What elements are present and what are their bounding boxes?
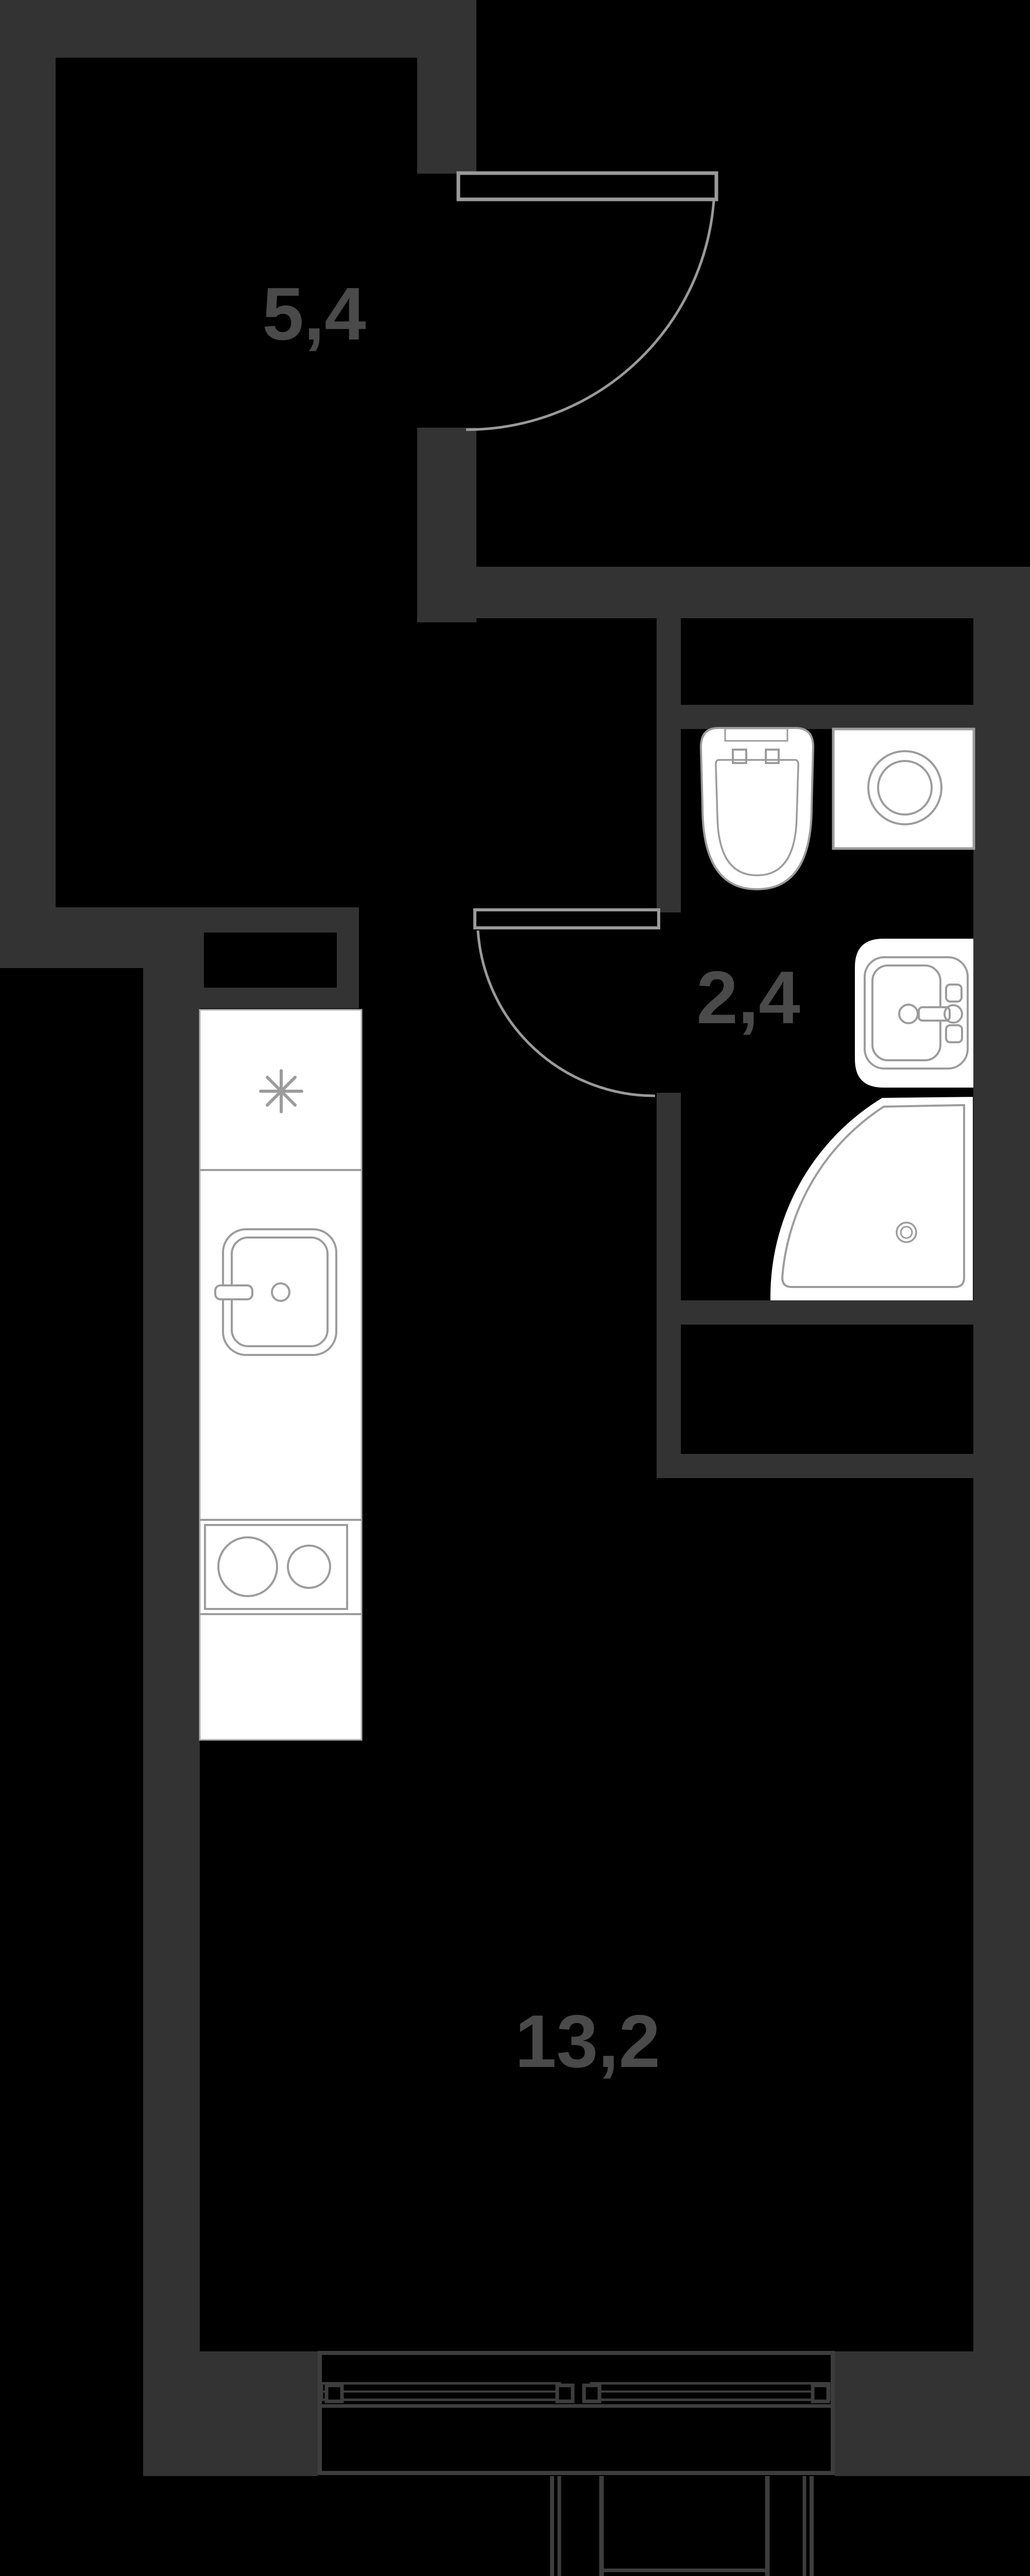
svg-text:5,4: 5,4 <box>262 272 366 355</box>
svg-text:2,4: 2,4 <box>696 956 800 1039</box>
svg-text:13,2: 13,2 <box>515 1999 660 2083</box>
